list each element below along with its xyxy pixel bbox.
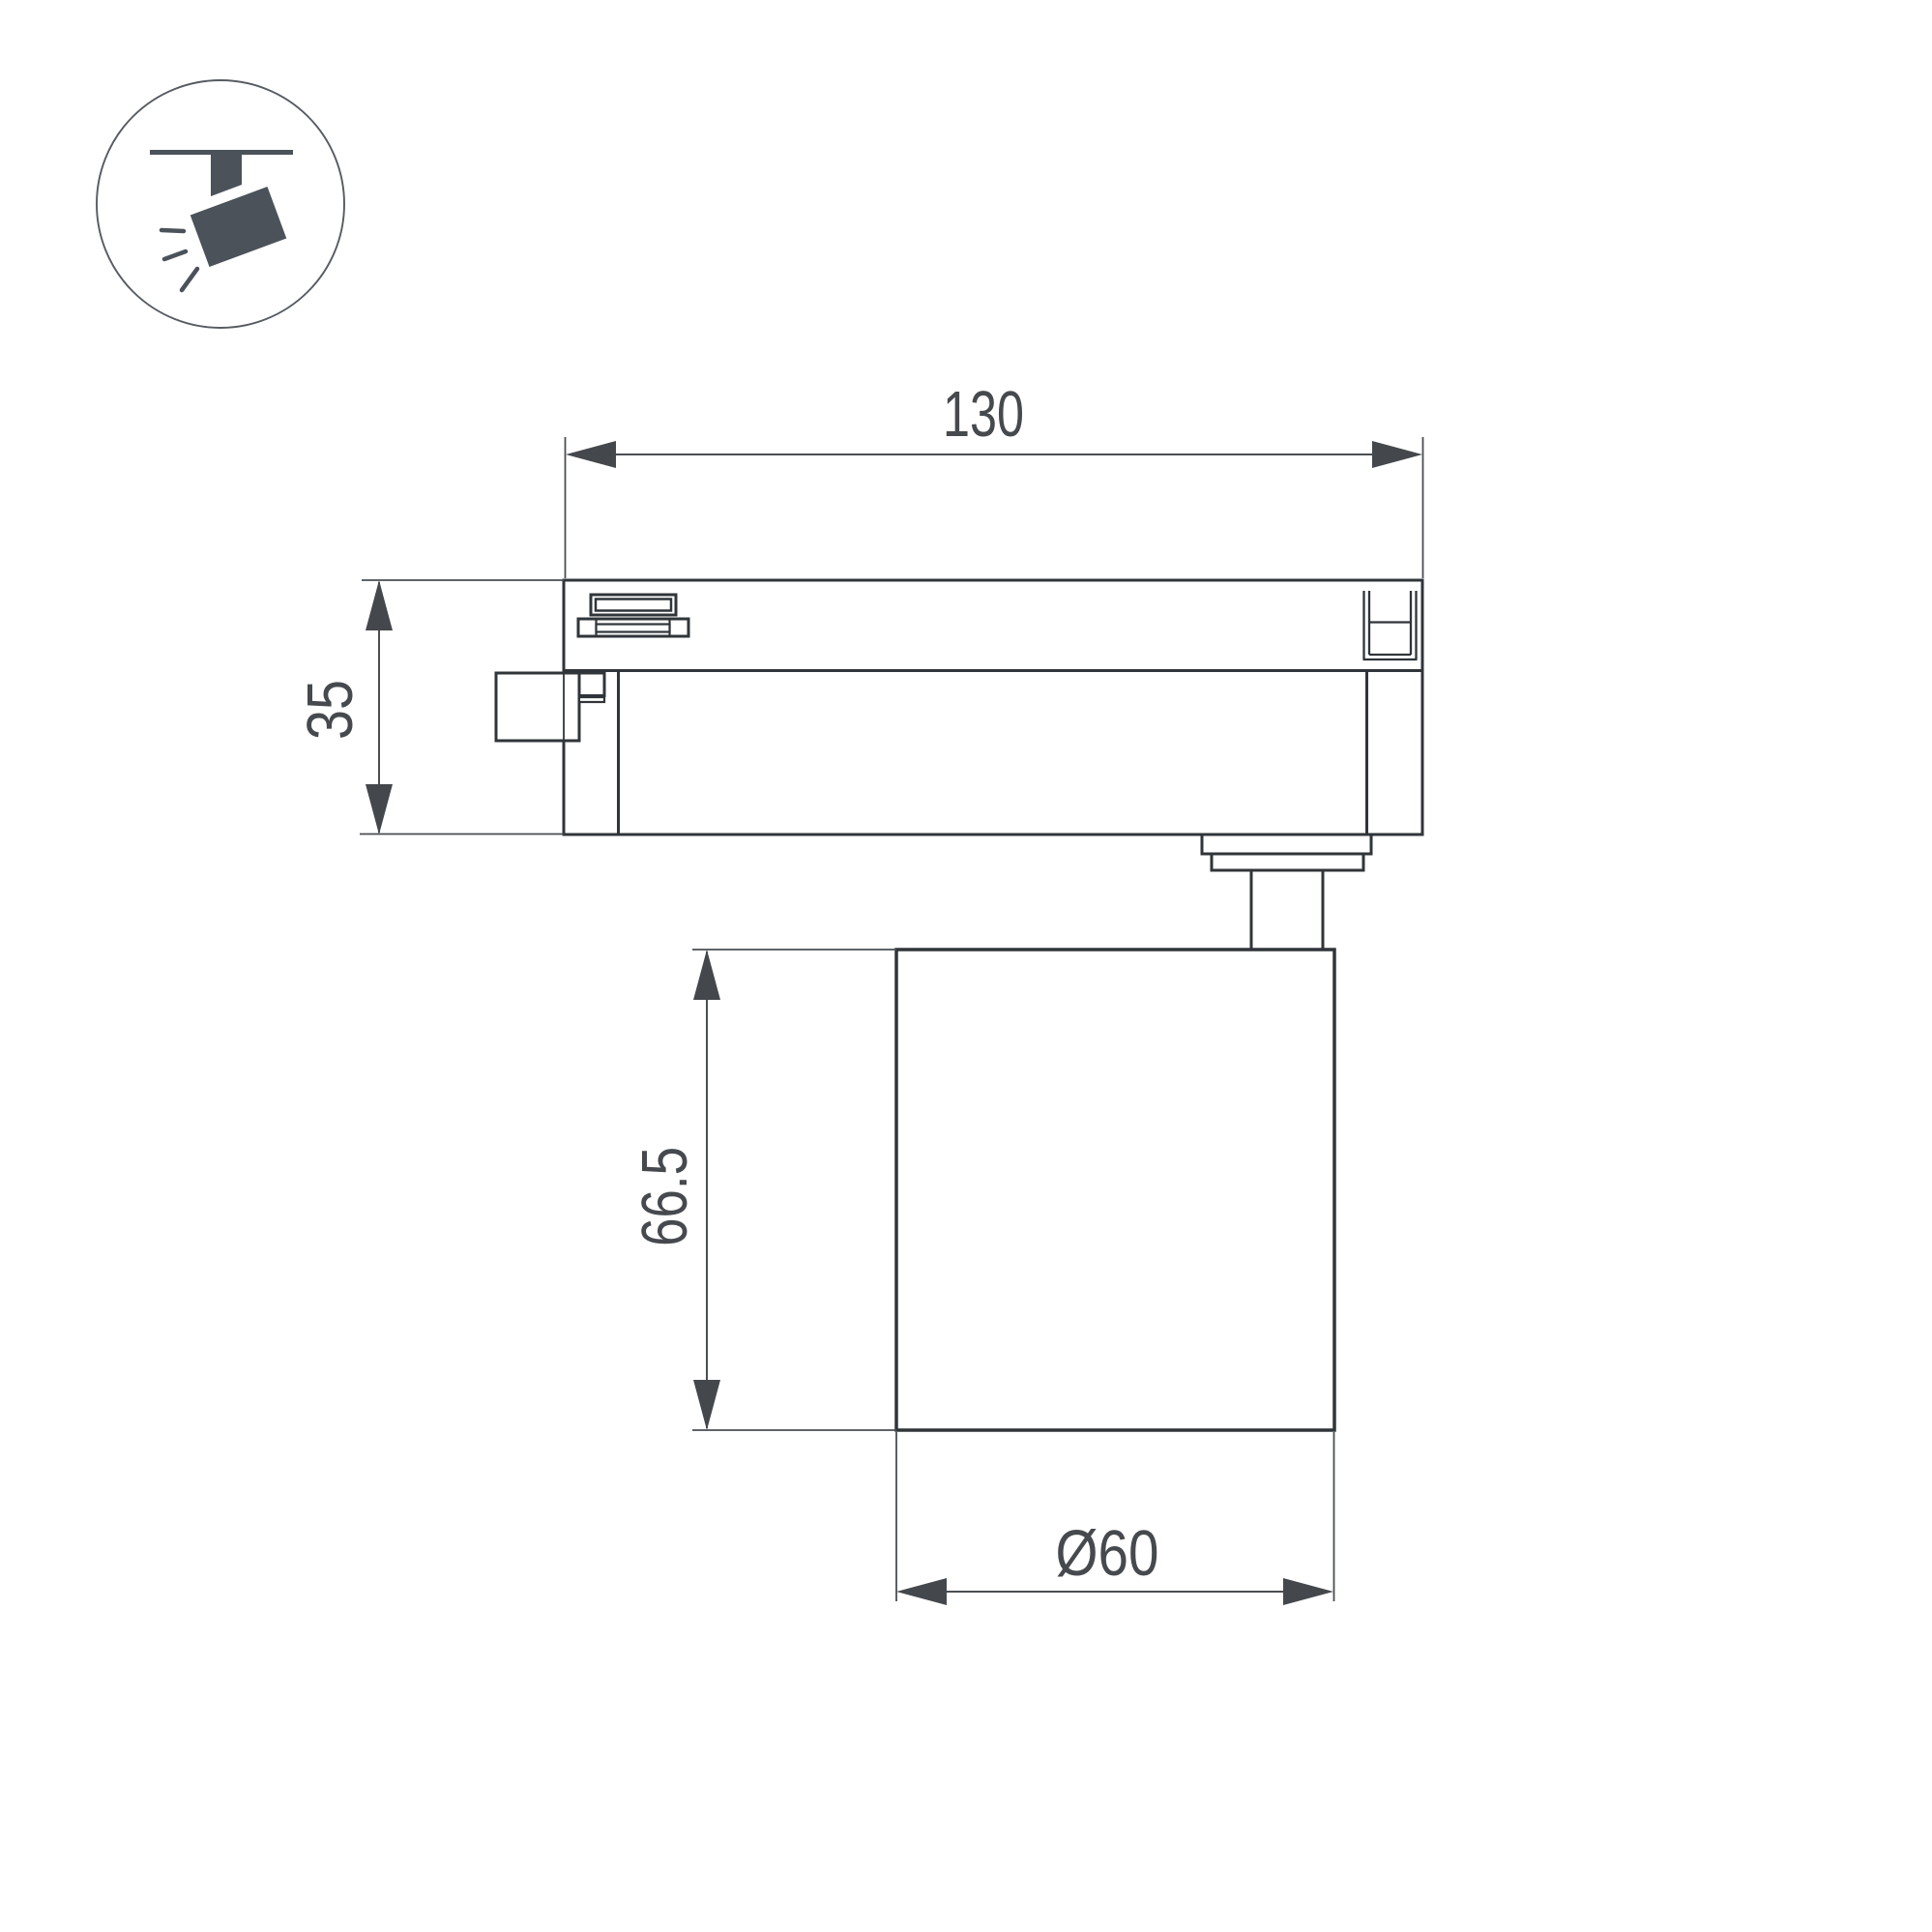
svg-text:66.5: 66.5: [629, 1147, 701, 1246]
svg-text:Ø60: Ø60: [1056, 1517, 1159, 1590]
svg-text:130: 130: [943, 378, 1024, 451]
svg-text:35: 35: [294, 680, 366, 740]
